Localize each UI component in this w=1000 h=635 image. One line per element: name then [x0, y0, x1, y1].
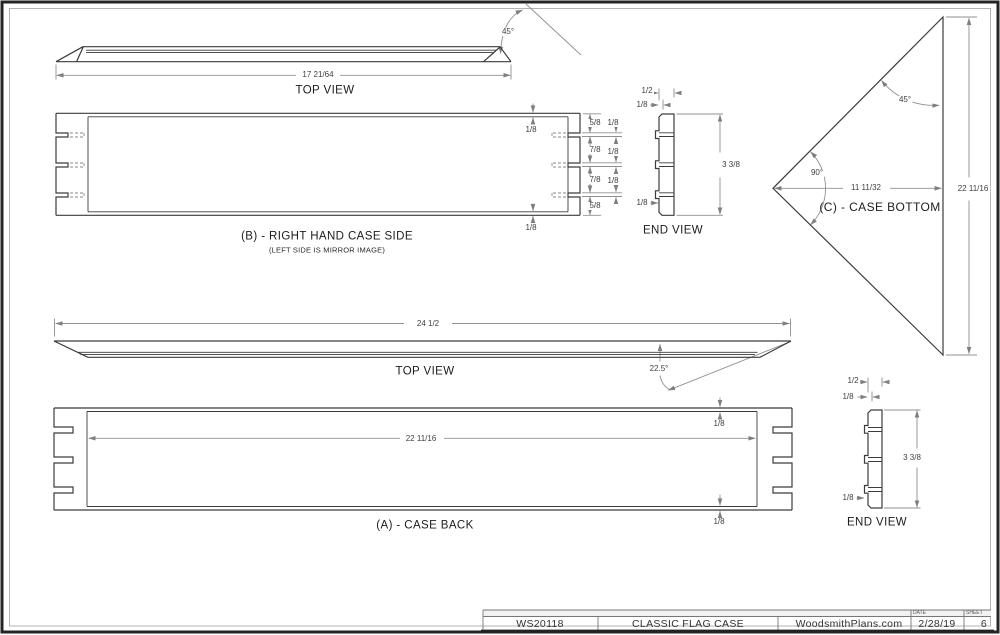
title-block-date: 2/28/19 — [918, 619, 955, 630]
case-back-outline — [54, 408, 792, 510]
length-dim-label: 24 1/2 — [415, 320, 440, 328]
segment-dim-label: 5/8 — [588, 119, 602, 127]
height-dim-label: 3 3/8 — [721, 161, 742, 169]
bevel-angle-dim-label: 22.5° — [648, 365, 670, 373]
corner-angle-dim-label: 90° — [809, 169, 824, 177]
view-title-case-side: (B) - RIGHT HAND CASE SIDE — [241, 231, 413, 243]
hidden-lines — [70, 133, 566, 197]
edge-dim-label-bottom: 1/8 — [713, 518, 724, 526]
inner-length-dim-label: 22 11/16 — [404, 435, 438, 443]
view-title-case-back: (A) - CASE BACK — [376, 520, 473, 532]
top-view-back-outline — [54, 341, 791, 357]
edge-dim-label-top: 1/8 — [713, 420, 724, 428]
segment-dim-label: 7/8 — [588, 146, 602, 154]
dimension-lines — [55, 4, 978, 518]
length-dim-label: 17 21/64 — [301, 71, 335, 79]
view-title-top-view-side: TOP VIEW — [295, 85, 354, 97]
title-block-project: CLASSIC FLAG CASE — [632, 619, 744, 630]
height-dim-label: 3 3/8 — [902, 454, 923, 462]
width-dim-label: 1/2 — [846, 377, 860, 385]
title-block-date-label: DATE — [913, 611, 926, 616]
view-title-end-view-side: END VIEW — [643, 225, 703, 237]
end-view-side-outline — [656, 114, 675, 215]
miter-angle-dim-label: 45° — [897, 96, 912, 104]
drawing-sheet: 45° 17 21/64 TOP VIEW 1/8 5/8 1/8 7/8 1/… — [0, 0, 1000, 635]
drawing-linework — [0, 0, 1000, 635]
edge-dim-label-bottom: 1/8 — [525, 224, 536, 232]
title-block-sheet: 6 — [981, 619, 987, 630]
case-side-outline — [56, 113, 580, 215]
slot-dim-label: 1/8 — [606, 119, 620, 127]
lip-dim-label: 1/8 — [635, 101, 649, 109]
segment-dim-label: 7/8 — [588, 176, 602, 184]
title-block-sheet-label: SHEET — [966, 611, 983, 616]
depth-dim-label: 11 11/32 — [850, 184, 883, 192]
bottom-lip-dim-label: 1/8 — [635, 199, 649, 207]
slot-dim-label: 1/8 — [606, 177, 620, 185]
lip-dim-label: 1/8 — [841, 393, 855, 401]
bottom-lip-dim-label: 1/8 — [841, 494, 855, 502]
width-dim-label: 22 11/16 — [956, 185, 990, 193]
end-view-back-outline — [865, 410, 883, 508]
view-title-top-view-back: TOP VIEW — [395, 366, 454, 378]
view-note-case-side: (LEFT SIDE IS MIRROR IMAGE) — [269, 246, 385, 254]
top-view-side-outline — [56, 47, 511, 62]
title-block-code: WS20118 — [516, 619, 563, 630]
edge-dim-label-top: 1/8 — [525, 126, 536, 134]
miter-angle-dim-label: 45° — [500, 28, 515, 36]
view-title-end-view-back: END VIEW — [847, 517, 907, 529]
view-title-case-bottom: (C) - CASE BOTTOM — [819, 201, 940, 213]
page-border — [2, 2, 998, 632]
title-block-site: WoodsmithPlans.com — [796, 619, 903, 630]
segment-dim-label: 5/8 — [588, 202, 602, 210]
width-dim-label: 1/2 — [640, 87, 654, 95]
object-lines — [54, 17, 943, 510]
slot-dim-label: 1/8 — [606, 148, 620, 156]
